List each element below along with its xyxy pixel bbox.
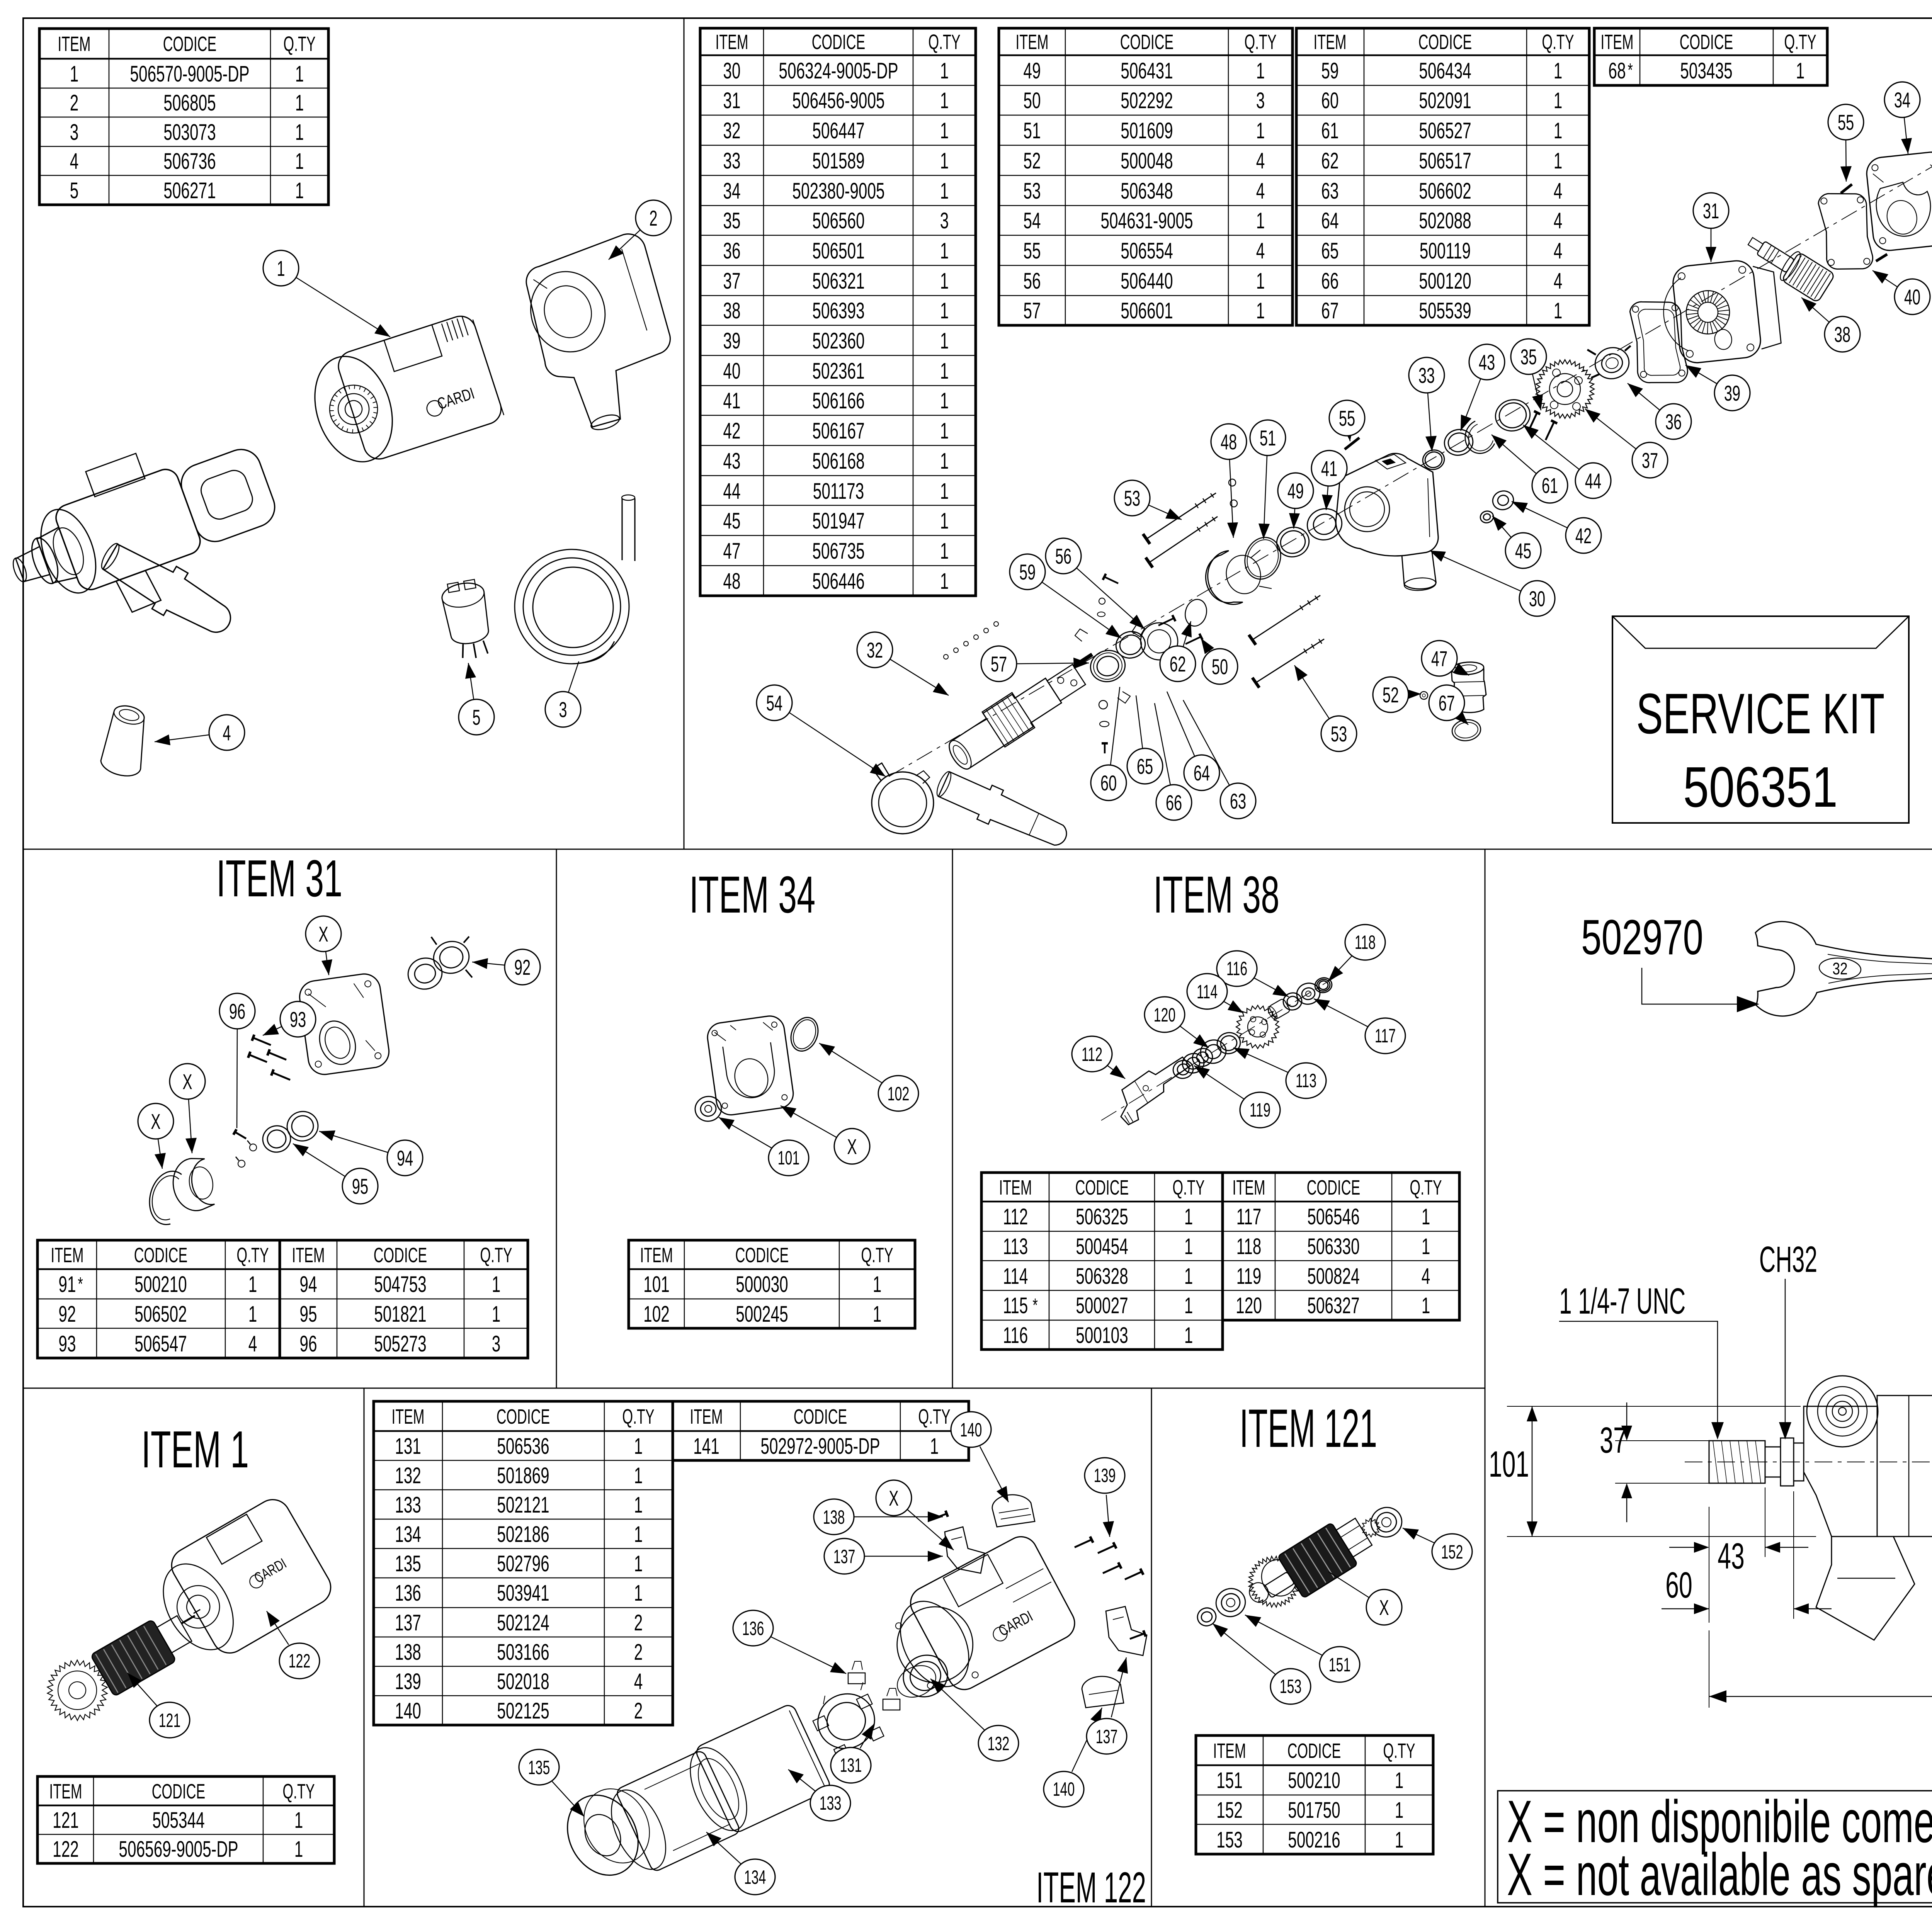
svg-text:1: 1 — [940, 359, 949, 384]
svg-text:Q.TY: Q.TY — [918, 1405, 950, 1428]
svg-text:504631-9005: 504631-9005 — [1100, 208, 1193, 233]
svg-text:114: 114 — [1197, 981, 1218, 1003]
svg-text:502121: 502121 — [497, 1492, 549, 1518]
svg-text:1: 1 — [634, 1551, 643, 1576]
svg-text:2: 2 — [634, 1640, 643, 1665]
svg-text:ITEM: ITEM — [1600, 31, 1633, 54]
svg-text:506325: 506325 — [1076, 1204, 1128, 1229]
svg-text:1: 1 — [1796, 58, 1805, 83]
svg-text:503073: 503073 — [163, 120, 216, 145]
svg-text:1: 1 — [634, 1434, 643, 1459]
svg-text:132: 132 — [988, 1733, 1010, 1755]
svg-text:506570-9005-DP: 506570-9005-DP — [130, 61, 249, 87]
svg-text:1: 1 — [248, 1302, 257, 1327]
svg-text:1: 1 — [634, 1463, 643, 1488]
svg-text:1: 1 — [492, 1272, 501, 1297]
svg-text:30: 30 — [723, 58, 740, 83]
svg-text:101: 101 — [643, 1272, 670, 1297]
svg-text:506602: 506602 — [1419, 178, 1471, 204]
svg-text:95: 95 — [299, 1302, 317, 1327]
svg-text:68: 68 — [1608, 58, 1626, 83]
svg-text:506440: 506440 — [1121, 269, 1173, 294]
svg-text:500824: 500824 — [1307, 1264, 1359, 1289]
svg-text:500048: 500048 — [1121, 148, 1173, 173]
svg-text:1: 1 — [1256, 58, 1265, 83]
svg-text:ITEM: ITEM — [51, 1244, 83, 1267]
svg-text:CODICE: CODICE — [163, 32, 217, 56]
svg-text:66: 66 — [1166, 791, 1182, 815]
svg-text:506393: 506393 — [812, 298, 864, 323]
svg-text:1: 1 — [1395, 1768, 1404, 1793]
svg-text:1: 1 — [295, 178, 304, 203]
svg-text:139: 139 — [395, 1669, 421, 1694]
svg-text:CARDI: CARDI — [435, 384, 477, 413]
svg-text:4: 4 — [248, 1331, 257, 1356]
svg-text:4: 4 — [634, 1669, 643, 1694]
svg-text:1: 1 — [70, 61, 79, 87]
svg-text:1: 1 — [940, 418, 949, 444]
svg-text:4: 4 — [1422, 1264, 1430, 1289]
svg-text:32: 32 — [723, 118, 740, 143]
svg-text:1: 1 — [1184, 1204, 1193, 1229]
svg-text:3: 3 — [1256, 88, 1265, 113]
svg-text:502088: 502088 — [1419, 208, 1471, 233]
svg-text:1 1/4-7 UNC: 1 1/4-7 UNC — [1559, 1280, 1685, 1321]
svg-text:501869: 501869 — [497, 1463, 549, 1488]
svg-text:120: 120 — [1154, 1005, 1176, 1026]
svg-text:65: 65 — [1137, 755, 1153, 779]
svg-text:505273: 505273 — [374, 1331, 426, 1356]
svg-text:1: 1 — [940, 539, 949, 564]
svg-text:4: 4 — [1554, 178, 1563, 204]
svg-text:1: 1 — [940, 328, 949, 354]
svg-text:133: 133 — [820, 1793, 842, 1814]
svg-text:1: 1 — [1184, 1323, 1193, 1348]
svg-text:51: 51 — [1023, 118, 1041, 143]
svg-text:47: 47 — [1431, 647, 1447, 671]
svg-text:102: 102 — [643, 1302, 670, 1327]
svg-text:506447: 506447 — [812, 118, 864, 143]
svg-text:500210: 500210 — [1288, 1768, 1340, 1793]
svg-text:500120: 500120 — [1419, 269, 1471, 294]
svg-text:33: 33 — [1418, 364, 1435, 388]
svg-text:Q.TY: Q.TY — [236, 1244, 269, 1267]
svg-text:121: 121 — [159, 1710, 181, 1732]
svg-text:1: 1 — [940, 449, 949, 474]
svg-text:500027: 500027 — [1076, 1293, 1128, 1318]
svg-text:*: * — [78, 1273, 83, 1294]
svg-text:506431: 506431 — [1121, 58, 1173, 83]
svg-text:153: 153 — [1216, 1827, 1243, 1853]
svg-text:Q.TY: Q.TY — [1542, 31, 1574, 54]
svg-text:ITEM 31: ITEM 31 — [216, 850, 342, 908]
svg-text:43: 43 — [1479, 351, 1495, 375]
svg-text:500103: 500103 — [1076, 1323, 1128, 1348]
svg-text:116: 116 — [1003, 1323, 1028, 1348]
svg-text:506456-9005: 506456-9005 — [792, 88, 884, 113]
svg-text:ITEM: ITEM — [1213, 1739, 1246, 1763]
svg-text:1: 1 — [294, 1837, 303, 1862]
svg-text:502972-9005-DP: 502972-9005-DP — [760, 1434, 880, 1459]
svg-text:CODICE: CODICE — [735, 1244, 789, 1267]
svg-text:152: 152 — [1441, 1542, 1463, 1563]
svg-text:3: 3 — [940, 208, 949, 233]
svg-text:136: 136 — [742, 1618, 764, 1640]
svg-text:54: 54 — [1023, 208, 1041, 233]
svg-text:CODICE: CODICE — [1075, 1176, 1129, 1199]
svg-text:120: 120 — [1236, 1293, 1262, 1318]
svg-text:Q.TY: Q.TY — [282, 1780, 315, 1803]
svg-text:CODICE: CODICE — [374, 1244, 427, 1267]
svg-text:65: 65 — [1321, 238, 1338, 263]
svg-text:3: 3 — [559, 698, 567, 722]
svg-text:140: 140 — [395, 1698, 421, 1724]
svg-text:506324-9005-DP: 506324-9005-DP — [779, 58, 898, 83]
svg-text:140: 140 — [960, 1419, 982, 1441]
svg-text:1: 1 — [940, 118, 949, 143]
svg-text:34: 34 — [1894, 88, 1910, 112]
svg-text:X: X — [1379, 1596, 1389, 1620]
svg-text:1: 1 — [873, 1302, 882, 1327]
svg-text:506434: 506434 — [1419, 58, 1471, 83]
svg-text:1: 1 — [1256, 298, 1265, 323]
svg-text:506569-9005-DP: 506569-9005-DP — [119, 1837, 238, 1862]
svg-text:96: 96 — [299, 1331, 317, 1356]
svg-text:502796: 502796 — [497, 1551, 549, 1576]
svg-text:64: 64 — [1321, 208, 1338, 233]
svg-text:122: 122 — [53, 1837, 79, 1862]
svg-text:31: 31 — [1703, 199, 1719, 223]
svg-text:55: 55 — [1023, 238, 1041, 263]
svg-text:135: 135 — [528, 1757, 550, 1779]
svg-text:48: 48 — [723, 569, 740, 594]
svg-text:44: 44 — [1585, 469, 1601, 493]
svg-text:CODICE: CODICE — [134, 1244, 188, 1267]
svg-text:1: 1 — [492, 1302, 501, 1327]
svg-text:Q.TY: Q.TY — [1383, 1739, 1415, 1763]
svg-text:151: 151 — [1216, 1768, 1243, 1793]
svg-text:1: 1 — [1184, 1234, 1193, 1259]
svg-text:57: 57 — [1023, 298, 1041, 323]
svg-text:42: 42 — [723, 418, 740, 444]
svg-text:ITEM: ITEM — [715, 31, 748, 54]
svg-text:1: 1 — [940, 238, 949, 263]
svg-text:502186: 502186 — [497, 1522, 549, 1547]
svg-text:64: 64 — [1194, 761, 1210, 785]
svg-text:4: 4 — [1256, 178, 1265, 204]
svg-text:ITEM: ITEM — [1015, 31, 1048, 54]
svg-text:135: 135 — [395, 1551, 421, 1576]
svg-text:4: 4 — [1256, 238, 1265, 263]
svg-text:503166: 503166 — [497, 1640, 549, 1665]
svg-text:505539: 505539 — [1419, 298, 1471, 323]
svg-text:501750: 501750 — [1288, 1798, 1340, 1823]
svg-text:137: 137 — [395, 1610, 421, 1635]
svg-text:X = not available as spare par: X = not available as spare part — [1507, 1841, 1932, 1908]
svg-text:93: 93 — [58, 1331, 76, 1356]
svg-text:1: 1 — [1256, 208, 1265, 233]
svg-text:SERVICE KIT: SERVICE KIT — [1636, 682, 1885, 746]
svg-text:ITEM 122: ITEM 122 — [1036, 1864, 1146, 1912]
svg-text:1: 1 — [295, 90, 304, 116]
svg-text:ITEM: ITEM — [999, 1176, 1032, 1199]
svg-text:56: 56 — [1055, 545, 1071, 569]
svg-text:X: X — [182, 1070, 192, 1094]
svg-text:2: 2 — [634, 1610, 643, 1635]
svg-text:1: 1 — [940, 569, 949, 594]
svg-text:506547: 506547 — [134, 1331, 187, 1356]
svg-text:506167: 506167 — [812, 418, 864, 444]
svg-text:138: 138 — [395, 1640, 421, 1665]
svg-text:61: 61 — [1542, 474, 1558, 498]
svg-text:36: 36 — [723, 238, 740, 263]
svg-text:1: 1 — [873, 1272, 882, 1297]
svg-text:501947: 501947 — [812, 508, 864, 534]
svg-text:61: 61 — [1321, 118, 1338, 143]
svg-text:51: 51 — [1260, 427, 1276, 450]
svg-text:57: 57 — [991, 653, 1007, 676]
svg-text:506536: 506536 — [497, 1434, 549, 1459]
svg-text:502380-9005: 502380-9005 — [792, 178, 884, 204]
svg-text:1: 1 — [940, 88, 949, 113]
svg-text:502125: 502125 — [497, 1698, 549, 1724]
svg-text:38: 38 — [723, 298, 740, 323]
svg-text:94: 94 — [397, 1147, 413, 1171]
svg-text:38: 38 — [1834, 323, 1850, 347]
svg-text:45: 45 — [723, 508, 740, 534]
svg-text:92: 92 — [514, 956, 531, 980]
svg-text:1: 1 — [634, 1581, 643, 1606]
svg-text:2: 2 — [649, 207, 657, 231]
svg-text:1: 1 — [248, 1272, 257, 1297]
svg-text:60: 60 — [1665, 1565, 1692, 1606]
svg-text:153: 153 — [1280, 1676, 1302, 1698]
svg-text:47: 47 — [723, 539, 740, 564]
svg-text:134: 134 — [395, 1522, 421, 1547]
svg-text:Q.TY: Q.TY — [480, 1244, 512, 1267]
svg-text:506517: 506517 — [1419, 148, 1471, 173]
svg-text:113: 113 — [1003, 1234, 1028, 1259]
svg-text:CARDI: CARDI — [252, 1555, 289, 1587]
svg-text:52: 52 — [1383, 683, 1399, 707]
svg-text:CODICE: CODICE — [1120, 31, 1174, 54]
svg-text:X: X — [847, 1135, 857, 1159]
svg-text:32: 32 — [867, 639, 883, 663]
svg-text:Q.TY: Q.TY — [283, 32, 315, 56]
svg-text:55: 55 — [1838, 111, 1854, 135]
svg-text:506348: 506348 — [1121, 178, 1173, 204]
svg-text:505344: 505344 — [152, 1808, 204, 1833]
svg-text:40: 40 — [1904, 286, 1920, 309]
svg-text:4: 4 — [1256, 148, 1265, 173]
svg-text:67: 67 — [1439, 692, 1455, 716]
svg-text:501821: 501821 — [374, 1302, 426, 1327]
svg-text:62: 62 — [1321, 148, 1338, 173]
svg-text:59: 59 — [1019, 561, 1036, 585]
svg-text:152: 152 — [1216, 1798, 1243, 1823]
svg-text:1: 1 — [940, 298, 949, 323]
svg-text:1: 1 — [1184, 1293, 1193, 1318]
svg-text:ITEM 38: ITEM 38 — [1153, 866, 1279, 924]
svg-text:506735: 506735 — [812, 539, 864, 564]
svg-text:506527: 506527 — [1419, 118, 1471, 143]
svg-text:118: 118 — [1355, 932, 1376, 954]
svg-text:CODICE: CODICE — [497, 1405, 550, 1428]
svg-text:35: 35 — [723, 208, 740, 233]
svg-text:1: 1 — [940, 58, 949, 83]
svg-text:122: 122 — [289, 1650, 311, 1672]
svg-text:137: 137 — [1096, 1726, 1118, 1748]
svg-text:1: 1 — [634, 1522, 643, 1547]
svg-text:67: 67 — [1321, 298, 1338, 323]
svg-text:112: 112 — [1082, 1044, 1102, 1066]
svg-text:133: 133 — [395, 1492, 421, 1518]
svg-text:1: 1 — [277, 257, 285, 281]
svg-text:1: 1 — [1554, 88, 1563, 113]
svg-text:Q.TY: Q.TY — [622, 1405, 654, 1428]
svg-text:500216: 500216 — [1288, 1827, 1340, 1853]
svg-text:62: 62 — [1170, 653, 1186, 676]
svg-text:93: 93 — [290, 1008, 306, 1032]
svg-text:1: 1 — [940, 388, 949, 413]
svg-text:1: 1 — [1256, 118, 1265, 143]
svg-text:44: 44 — [723, 479, 740, 504]
svg-text:506502: 506502 — [134, 1302, 187, 1327]
svg-text:502091: 502091 — [1419, 88, 1471, 113]
svg-text:48: 48 — [1221, 430, 1237, 454]
svg-text:53: 53 — [1124, 487, 1140, 511]
svg-text:Q.TY: Q.TY — [928, 31, 960, 54]
svg-text:37: 37 — [723, 269, 740, 294]
svg-text:502360: 502360 — [812, 328, 864, 354]
svg-text:37: 37 — [1642, 449, 1658, 473]
svg-text:30: 30 — [1529, 587, 1545, 611]
svg-text:131: 131 — [395, 1434, 421, 1459]
svg-text:501589: 501589 — [812, 148, 864, 173]
svg-text:1: 1 — [1422, 1234, 1430, 1259]
svg-text:119: 119 — [1250, 1100, 1270, 1121]
svg-text:1: 1 — [1554, 58, 1563, 83]
svg-text:113: 113 — [1296, 1070, 1316, 1092]
svg-text:137: 137 — [833, 1546, 855, 1568]
svg-text:2: 2 — [70, 90, 79, 116]
svg-text:506805: 506805 — [163, 90, 216, 116]
svg-text:ITEM: ITEM — [49, 1780, 82, 1803]
svg-text:136: 136 — [395, 1581, 421, 1606]
svg-text:1: 1 — [940, 178, 949, 204]
svg-text:Q.TY: Q.TY — [1410, 1176, 1442, 1199]
svg-text:506271: 506271 — [163, 178, 216, 203]
svg-text:141: 141 — [693, 1434, 719, 1459]
svg-text:60: 60 — [1100, 772, 1117, 795]
svg-text:41: 41 — [723, 388, 740, 413]
svg-text:91: 91 — [58, 1272, 76, 1297]
svg-text:42: 42 — [1575, 524, 1592, 548]
svg-text:112: 112 — [1003, 1204, 1028, 1229]
svg-text:4: 4 — [1554, 238, 1563, 263]
svg-text:43: 43 — [1718, 1536, 1745, 1577]
svg-text:500210: 500210 — [134, 1272, 187, 1297]
svg-text:CODICE: CODICE — [1287, 1739, 1341, 1763]
svg-text:139: 139 — [1094, 1465, 1116, 1487]
svg-text:45: 45 — [1515, 539, 1531, 563]
svg-text:131: 131 — [840, 1755, 862, 1776]
svg-text:Q.TY: Q.TY — [1172, 1176, 1204, 1199]
svg-text:506330: 506330 — [1307, 1234, 1359, 1259]
svg-text:3: 3 — [492, 1331, 501, 1356]
svg-text:50: 50 — [1023, 88, 1041, 113]
svg-text:117: 117 — [1375, 1025, 1396, 1047]
svg-text:53: 53 — [1331, 722, 1347, 746]
svg-text:60: 60 — [1321, 88, 1338, 113]
svg-text:503435: 503435 — [1680, 58, 1732, 83]
svg-text:1: 1 — [1422, 1293, 1430, 1318]
svg-text:1: 1 — [1422, 1204, 1430, 1229]
svg-text:Q.TY: Q.TY — [861, 1244, 893, 1267]
svg-text:151: 151 — [1329, 1654, 1351, 1676]
svg-text:32: 32 — [1832, 959, 1847, 978]
svg-text:138: 138 — [823, 1507, 845, 1528]
svg-text:1: 1 — [1395, 1798, 1404, 1823]
svg-text:63: 63 — [1230, 790, 1246, 814]
svg-text:66: 66 — [1321, 269, 1338, 294]
svg-text:Q.TY: Q.TY — [1784, 31, 1816, 54]
svg-text:ITEM: ITEM — [690, 1405, 723, 1428]
svg-text:54: 54 — [766, 692, 782, 716]
svg-text:1: 1 — [295, 61, 304, 87]
svg-text:40: 40 — [723, 359, 740, 384]
svg-text:95: 95 — [352, 1175, 368, 1199]
svg-text:101: 101 — [778, 1147, 800, 1169]
svg-text:ITEM 1: ITEM 1 — [141, 1421, 249, 1479]
svg-text:118: 118 — [1236, 1234, 1262, 1259]
svg-text:CODICE: CODICE — [1680, 31, 1733, 54]
svg-text:506166: 506166 — [812, 388, 864, 413]
svg-text:1: 1 — [1256, 269, 1265, 294]
svg-text:53: 53 — [1023, 178, 1041, 204]
svg-text:1: 1 — [940, 269, 949, 294]
svg-text:X: X — [151, 1110, 160, 1134]
svg-text:*: * — [1032, 1295, 1037, 1316]
svg-text:140: 140 — [1053, 1779, 1075, 1800]
svg-text:ITEM: ITEM — [58, 32, 90, 56]
svg-text:63: 63 — [1321, 178, 1338, 204]
svg-text:39: 39 — [1724, 382, 1740, 406]
svg-text:ITEM: ITEM — [391, 1405, 424, 1428]
svg-text:55: 55 — [1339, 407, 1355, 431]
svg-text:33: 33 — [723, 148, 740, 173]
svg-text:1: 1 — [1184, 1264, 1193, 1289]
svg-text:506327: 506327 — [1307, 1293, 1359, 1318]
svg-text:119: 119 — [1236, 1264, 1262, 1289]
svg-text:504753: 504753 — [374, 1272, 426, 1297]
svg-text:92: 92 — [58, 1302, 76, 1327]
svg-text:506351: 506351 — [1683, 755, 1838, 819]
svg-text:35: 35 — [1520, 345, 1537, 369]
svg-text:506601: 506601 — [1121, 298, 1173, 323]
svg-text:*: * — [1628, 59, 1633, 80]
svg-text:36: 36 — [1665, 410, 1682, 434]
svg-text:114: 114 — [1003, 1264, 1028, 1289]
svg-text:56: 56 — [1023, 269, 1041, 294]
svg-text:1: 1 — [940, 508, 949, 534]
svg-text:506446: 506446 — [812, 569, 864, 594]
svg-text:CODICE: CODICE — [794, 1405, 847, 1428]
svg-text:503941: 503941 — [497, 1581, 549, 1606]
svg-text:115: 115 — [1003, 1293, 1028, 1318]
svg-text:ITEM 34: ITEM 34 — [689, 866, 815, 924]
svg-text:X: X — [318, 923, 328, 947]
